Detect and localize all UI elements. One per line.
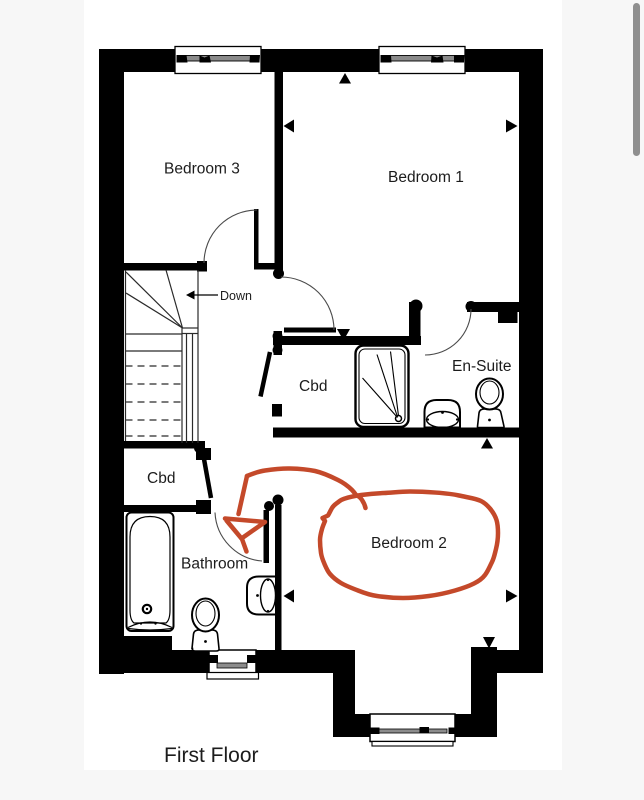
svg-text:Down: Down: [220, 289, 252, 303]
svg-text:Bathroom: Bathroom: [181, 556, 248, 573]
svg-text:Bedroom 3: Bedroom 3: [164, 161, 240, 178]
svg-text:Cbd: Cbd: [299, 378, 327, 395]
svg-text:Cbd: Cbd: [147, 470, 175, 487]
svg-text:En-Suite: En-Suite: [452, 358, 511, 375]
svg-text:Bedroom 2: Bedroom 2: [371, 535, 447, 552]
svg-text:First Floor: First Floor: [164, 744, 259, 767]
svg-text:Bedroom 1: Bedroom 1: [388, 169, 464, 186]
